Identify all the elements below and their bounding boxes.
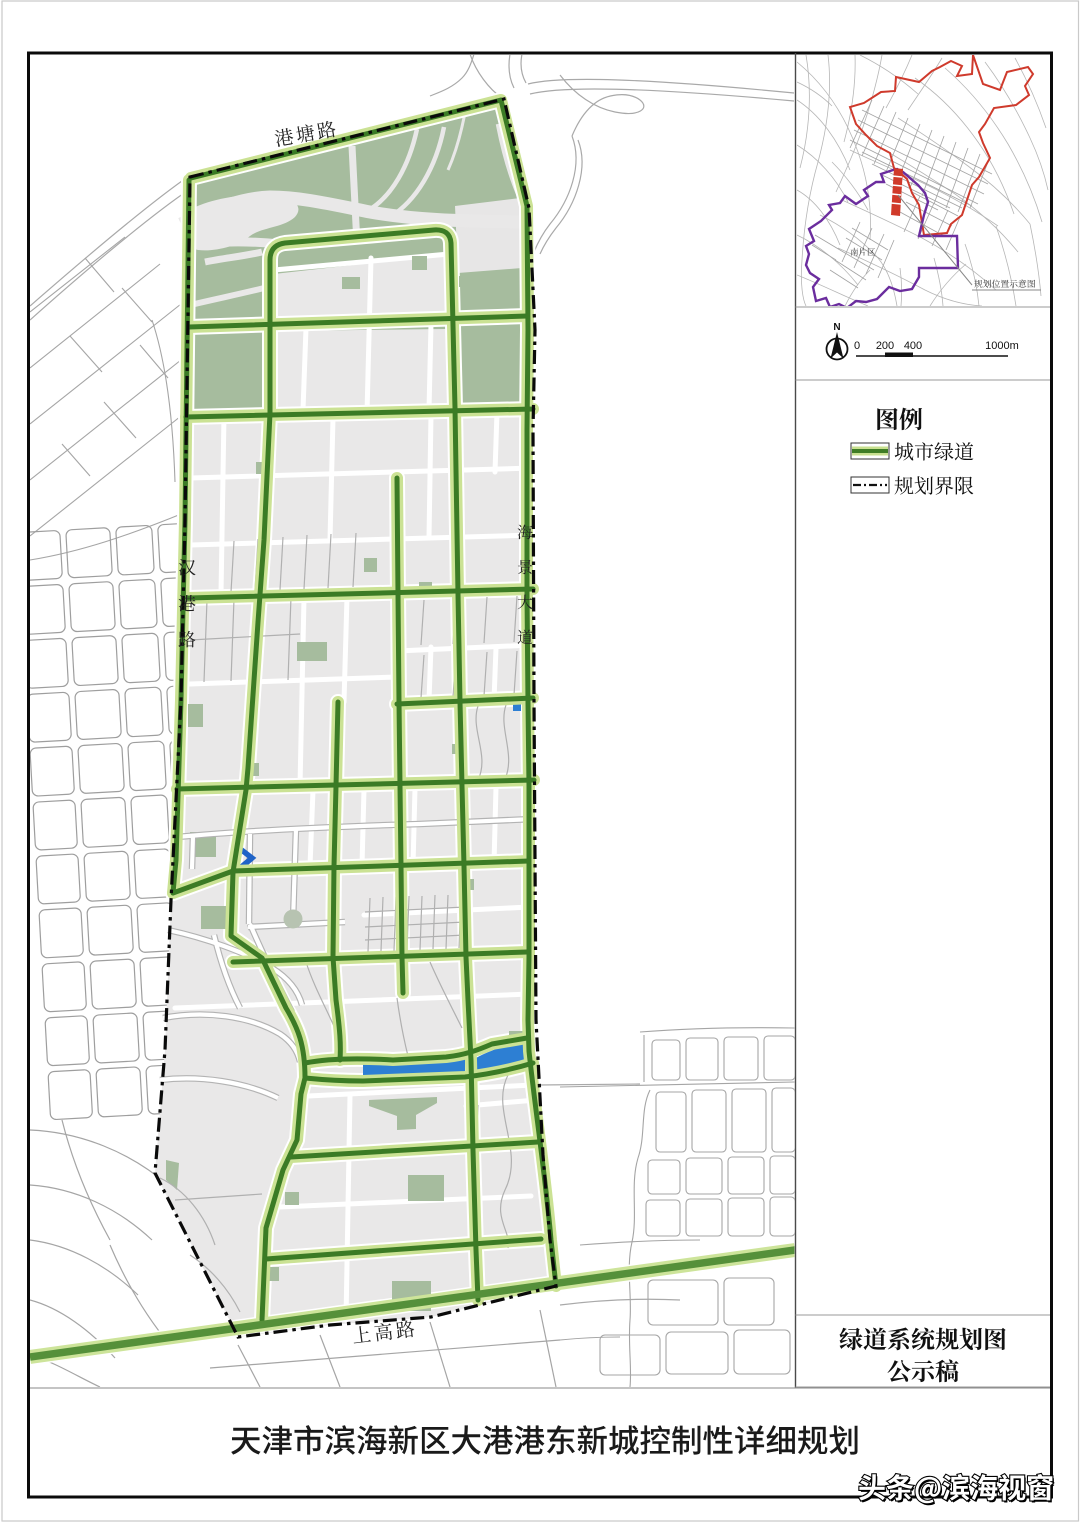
svg-text:1000m: 1000m (985, 340, 1019, 352)
svg-text:N: N (833, 322, 840, 333)
svg-text:200: 200 (876, 340, 894, 352)
svg-text:0: 0 (854, 340, 860, 352)
svg-text:400: 400 (904, 340, 922, 352)
